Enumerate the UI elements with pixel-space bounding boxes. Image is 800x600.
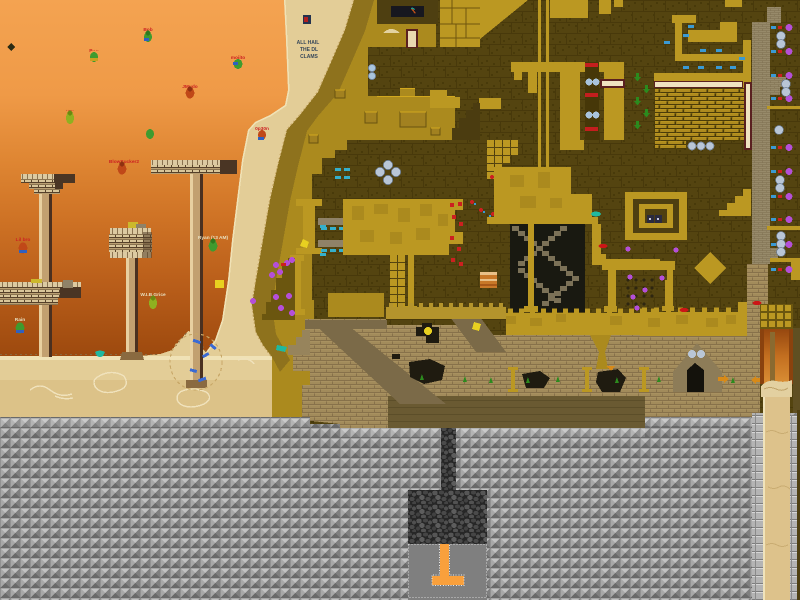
svg-text:ALL HAIL: ALL HAIL [297, 40, 320, 46]
svg-text:CLAMS: CLAMS [300, 54, 318, 60]
svg-text:Rain: Rain [15, 317, 25, 323]
svg-text:Lil bro: Lil bro [16, 237, 31, 243]
svg-text:THE DL: THE DL [300, 47, 318, 53]
